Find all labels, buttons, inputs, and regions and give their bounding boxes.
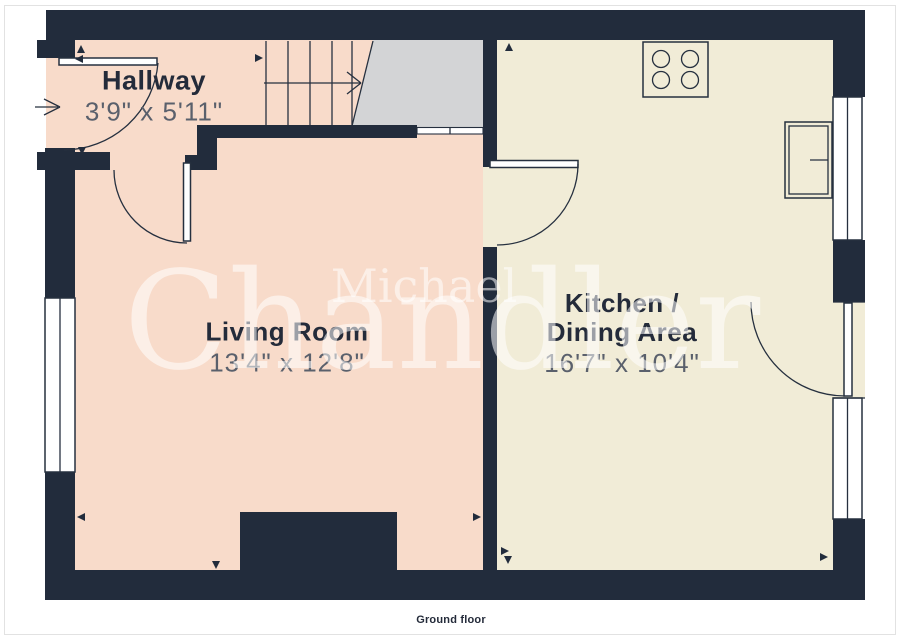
wall-top: [46, 10, 865, 40]
stair-landing-floor: [352, 40, 483, 133]
wall-right-middle: [833, 240, 865, 302]
hallway-label: Hallway 3'9" x 5'11": [85, 67, 223, 128]
living-kitchen-door-leaf: [490, 161, 578, 168]
hob-icon: [643, 42, 708, 97]
wall-understairs: [197, 125, 417, 138]
kitchen-door-leaf: [844, 303, 852, 396]
wall-right-upper: [833, 40, 865, 97]
hallway-dimensions: 3'9" x 5'11": [85, 96, 223, 128]
wall-divider-upper: [483, 40, 497, 167]
living-room-dimensions: 13'4" x 12'8": [206, 347, 369, 379]
front-door-leaf: [59, 58, 157, 65]
kitchen-name-line1: Kitchen /: [544, 289, 700, 318]
kitchen-living-threshold: [483, 167, 497, 247]
living-room-label: Living Room 13'4" x 12'8": [206, 318, 369, 379]
living-room-name: Living Room: [206, 318, 369, 347]
kitchen-name-line2: Dining Area: [544, 318, 700, 347]
floor-caption: Ground floor: [416, 614, 486, 626]
hallway-living-door-leaf: [184, 163, 191, 241]
wall-bottom: [45, 570, 865, 600]
chimney-breast: [240, 512, 397, 572]
wall-entrance-jamb: [37, 40, 75, 58]
kitchen-label: Kitchen / Dining Area 16'7" x 10'4": [544, 289, 700, 379]
kitchen-dimensions: 16'7" x 10'4": [544, 347, 700, 379]
hallway-name: Hallway: [85, 67, 223, 96]
wall-divider-lower: [483, 247, 497, 570]
wall-right-lower: [833, 519, 865, 600]
floorplan-page: Hallway 3'9" x 5'11" Living Room 13'4" x…: [0, 0, 900, 636]
wall-hallway-bottom: [37, 152, 110, 170]
